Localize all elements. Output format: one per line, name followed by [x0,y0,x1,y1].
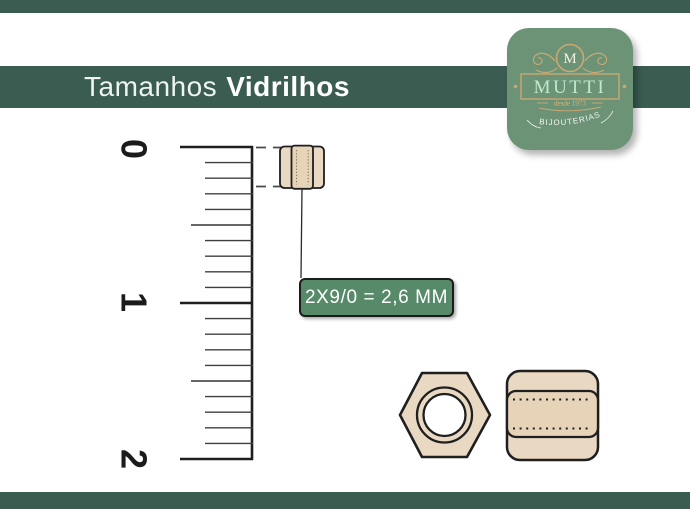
infographic-canvas: Tamanhos Vidrilhos [0,0,690,509]
logo-monogram: M [563,51,576,67]
bead-hexagon-front-view [400,373,490,457]
ruler-mark-0: 0 [114,139,155,159]
bead-small-side-view [280,146,324,189]
bead-hole [424,394,466,436]
brand-logo-badge: M MUTTI desde 1973 [507,28,633,150]
size-callout-label: 2X9/0 = 2,6 MM [299,278,454,317]
bottom-accent-bar [0,492,690,509]
ruler-mark-2: 2 [114,449,155,469]
callout-connector-line [301,189,302,279]
logo-name-frame: MUTTI [514,74,626,99]
logo-brand-name: MUTTI [534,77,607,98]
logo-since-row: desde 1973 [537,100,603,111]
bead-square-side-view [507,371,598,460]
measure-guides [256,148,281,187]
ruler-mark-1: 1 [114,292,155,312]
logo-tagline-text: BIJOUTERIAS [539,110,602,127]
size-callout-text: 2X9/0 = 2,6 MM [305,287,448,309]
logo-ornament-monogram-circle: M [533,45,606,73]
logo-since-text: desde 1973 [554,100,586,108]
ruler: 0 1 2 [114,139,254,469]
logo-tagline-arc: BIJOUTERIAS [527,110,613,128]
